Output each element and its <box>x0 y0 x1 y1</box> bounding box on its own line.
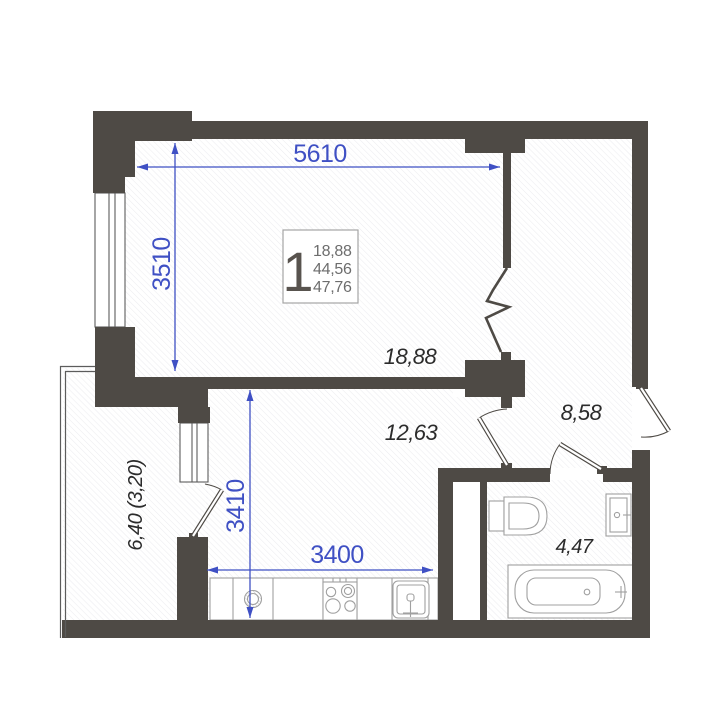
balcony-area-label: 6,40 (3,20) <box>125 459 147 550</box>
wall-right-upper <box>632 121 648 387</box>
wall-central-pier <box>465 360 525 397</box>
wall-right-lower <box>632 450 650 622</box>
hallway-area-label: 8,58 <box>561 400 603 425</box>
wall-pilaster-topleft <box>93 111 192 141</box>
balcony-window <box>180 423 208 482</box>
unit-info-card: 1 18,88 44,56 47,76 <box>282 230 358 303</box>
dim-label-5610: 5610 <box>293 140 347 168</box>
dim-label-3400: 3400 <box>310 541 364 569</box>
kitchen-counter <box>210 578 438 620</box>
unit-room-count: 1 <box>282 240 313 303</box>
dim-label-3410: 3410 <box>222 479 250 533</box>
wall-kitchen-right <box>438 468 453 622</box>
wall-bathroom-left <box>480 482 487 620</box>
floorplan-drawing: 5610 3510 3410 3400 18,88 12,63 8,58 4,4… <box>0 0 717 717</box>
wall-pilaster-left <box>95 327 135 407</box>
unit-total-area: 47,76 <box>313 279 352 296</box>
washing-machine-icon <box>245 591 262 608</box>
stove-icon <box>323 578 357 620</box>
wall-living-kitchen <box>208 377 467 389</box>
bathtub-icon <box>508 565 633 618</box>
dim-label-3510: 3510 <box>148 237 176 291</box>
floorplan-page: 5610 3510 3410 3400 18,88 12,63 8,58 4,4… <box>0 0 717 717</box>
living-room-area-label: 18,88 <box>384 344 438 369</box>
kitchen-sink-icon <box>393 581 429 618</box>
wall-top <box>192 121 648 139</box>
duct-shaft <box>453 482 480 620</box>
wall-partition <box>503 153 511 268</box>
wall-bottom <box>62 620 650 638</box>
toilet-icon <box>489 497 547 535</box>
unit-area-without-balcony: 44,56 <box>313 261 352 278</box>
unit-living-area: 18,88 <box>313 243 352 260</box>
living-room-window <box>95 193 125 327</box>
kitchen-area-label: 12,63 <box>385 420 439 445</box>
bathroom-sink-icon <box>606 494 631 536</box>
entrance-door <box>641 388 669 437</box>
bathroom-area-label: 4,47 <box>556 536 594 558</box>
wall-balcony-lower <box>177 537 208 622</box>
